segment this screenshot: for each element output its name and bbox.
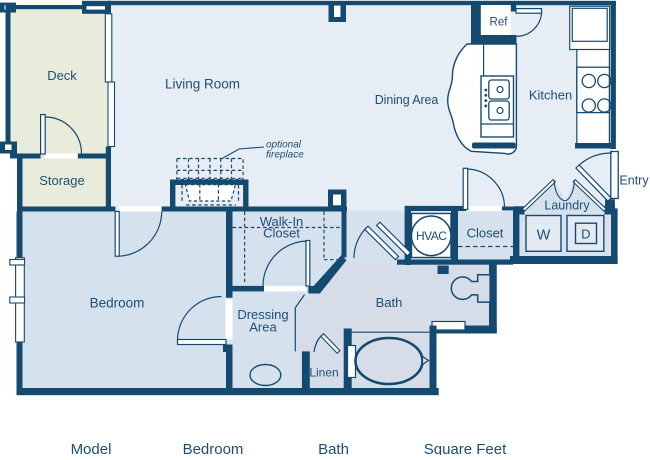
svg-text:Model: Model	[71, 441, 112, 455]
svg-text:Dining Area: Dining Area	[375, 93, 439, 107]
svg-text:Storage: Storage	[39, 173, 85, 188]
svg-text:Bath: Bath	[376, 295, 403, 310]
svg-text:Living Room: Living Room	[165, 77, 240, 92]
svg-text:Closet: Closet	[467, 226, 504, 241]
svg-text:W: W	[537, 228, 551, 244]
svg-text:HVAC: HVAC	[416, 229, 447, 243]
svg-text:Bath: Bath	[318, 441, 349, 455]
svg-text:Deck: Deck	[47, 68, 77, 83]
svg-text:Linen: Linen	[309, 366, 338, 380]
svg-text:D: D	[581, 227, 590, 242]
svg-text:Entry: Entry	[619, 174, 649, 188]
svg-text:Bedroom: Bedroom	[183, 441, 244, 455]
svg-text:Kitchen: Kitchen	[529, 88, 572, 103]
svg-text:Laundry: Laundry	[544, 199, 590, 213]
svg-text:Bedroom: Bedroom	[90, 296, 145, 311]
svg-text:Area: Area	[249, 320, 277, 335]
svg-text:Square Feet: Square Feet	[424, 441, 507, 455]
svg-text:fireplace: fireplace	[266, 150, 304, 161]
svg-text:Closet: Closet	[263, 226, 300, 241]
svg-text:Ref: Ref	[490, 17, 509, 29]
